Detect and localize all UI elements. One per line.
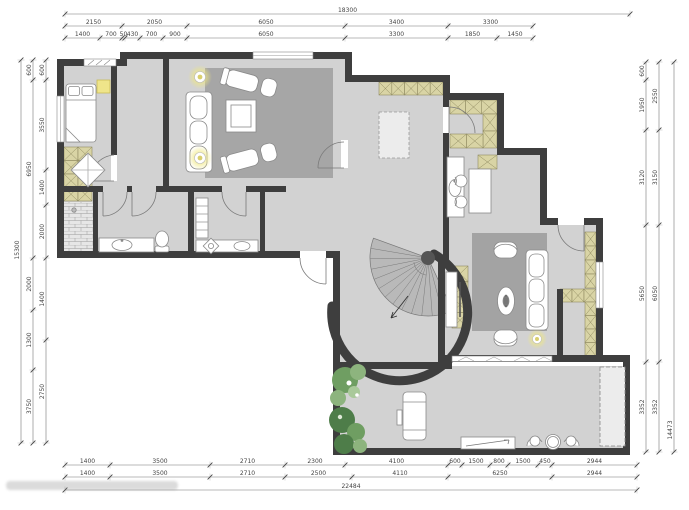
terrace-dashed-area: [600, 367, 625, 446]
coffee-table: [226, 100, 256, 132]
svg-text:2000: 2000: [39, 224, 46, 239]
svg-text:1400: 1400: [75, 31, 90, 38]
svg-text:2000: 2000: [26, 276, 33, 291]
shower-tile-floor: [64, 202, 97, 254]
svg-text:1500: 1500: [515, 458, 530, 465]
svg-text:700: 700: [146, 31, 158, 38]
light-living-top: [188, 65, 212, 89]
svg-text:6950: 6950: [26, 161, 33, 176]
light-sitting-room: [527, 329, 547, 349]
svg-text:700: 700: [105, 31, 117, 38]
armchair-top: [494, 242, 517, 258]
svg-text:22484: 22484: [341, 483, 360, 490]
svg-text:1400: 1400: [39, 291, 46, 306]
svg-text:3150: 3150: [652, 170, 659, 185]
shower-head: [72, 208, 76, 212]
svg-text:14473: 14473: [667, 420, 674, 439]
svg-text:1850: 1850: [465, 31, 480, 38]
laundry-counter: [196, 238, 258, 254]
svg-text:600: 600: [39, 64, 46, 76]
svg-text:2944: 2944: [587, 470, 602, 477]
svg-text:800: 800: [493, 458, 505, 465]
svg-text:2150: 2150: [86, 19, 101, 26]
svg-text:1500: 1500: [468, 458, 483, 465]
svg-text:2550: 2550: [652, 88, 659, 103]
svg-text:1400: 1400: [80, 458, 95, 465]
svg-text:2710: 2710: [240, 458, 255, 465]
door-hall-to-stair: [300, 251, 326, 284]
svg-text:1300: 1300: [26, 332, 33, 347]
svg-text:1450: 1450: [507, 31, 522, 38]
svg-text:2300: 2300: [307, 458, 322, 465]
svg-text:2944: 2944: [587, 458, 602, 465]
svg-text:3352: 3352: [652, 399, 659, 414]
terrace-bench: [461, 437, 515, 449]
svg-text:450: 450: [539, 458, 551, 465]
closet-rail-top: [84, 59, 116, 66]
svg-text:900: 900: [169, 31, 181, 38]
bed: [66, 84, 96, 142]
armchair-bottom: [494, 330, 517, 346]
svg-text:3120: 3120: [639, 170, 646, 185]
floor-plan-page: 1830021502050605034003300140070050430700…: [0, 0, 689, 510]
svg-text:600: 600: [639, 65, 646, 77]
svg-text:1950: 1950: [639, 97, 646, 112]
svg-text:5650: 5650: [639, 286, 646, 301]
svg-text:6050: 6050: [258, 31, 273, 38]
svg-text:4100: 4100: [389, 458, 404, 465]
toilet: [155, 231, 169, 252]
svg-text:600: 600: [449, 458, 461, 465]
window-sitting-right: [596, 262, 603, 308]
window-terrace-band: [452, 356, 552, 362]
svg-text:600: 600: [26, 64, 33, 76]
svg-text:3500: 3500: [152, 470, 167, 477]
svg-text:3550: 3550: [39, 117, 46, 132]
light-living-bottom: [188, 146, 212, 170]
sitting-sofa: [526, 250, 548, 330]
svg-text:2750: 2750: [39, 384, 46, 399]
svg-text:6050: 6050: [652, 286, 659, 301]
watermark: [6, 481, 178, 490]
svg-text:3300: 3300: [389, 31, 404, 38]
svg-text:15300: 15300: [14, 240, 21, 259]
skylight-dashed: [379, 112, 409, 158]
svg-text:430: 430: [127, 31, 139, 38]
svg-text:18300: 18300: [338, 7, 357, 14]
svg-text:2710: 2710: [240, 470, 255, 477]
svg-text:3352: 3352: [639, 399, 646, 414]
svg-text:1400: 1400: [80, 470, 95, 477]
laundry-shelves: [196, 198, 208, 238]
nightstand-lamp: [97, 80, 110, 93]
svg-text:4110: 4110: [392, 470, 407, 477]
svg-text:6050: 6050: [258, 19, 273, 26]
window-living-top: [253, 52, 313, 59]
bath-vanity: [99, 238, 154, 252]
svg-text:3750: 3750: [26, 399, 33, 414]
svg-text:2050: 2050: [147, 19, 162, 26]
stair-center-pole: [421, 251, 435, 265]
svg-text:3300: 3300: [483, 19, 498, 26]
window-left-wall: [57, 96, 64, 142]
svg-text:2500: 2500: [311, 470, 326, 477]
side-table-tray: [498, 287, 515, 315]
svg-text:3400: 3400: [389, 19, 404, 26]
floor-plan-drawing: 1830021502050605034003300140070050430700…: [0, 0, 689, 510]
svg-text:6250: 6250: [492, 470, 507, 477]
svg-text:1400: 1400: [39, 180, 46, 195]
svg-text:3500: 3500: [152, 458, 167, 465]
